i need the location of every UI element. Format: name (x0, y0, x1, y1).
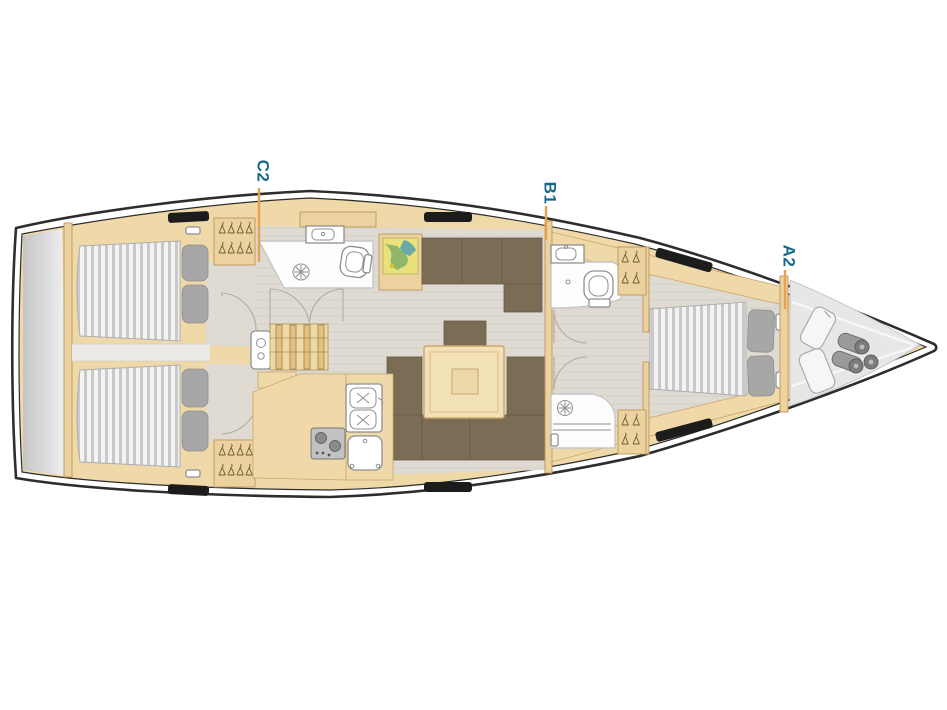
engine-space (72, 344, 210, 361)
bow-locker (790, 280, 920, 406)
double-bed-icon (650, 302, 746, 396)
cabinet (300, 212, 376, 227)
cabin-floor (206, 364, 254, 442)
cabin-label-a2: A2 (780, 245, 799, 268)
nav-station (379, 234, 422, 290)
hanging-locker-icon (618, 410, 646, 454)
hanging-locker-icon (618, 247, 646, 295)
aft-bulkhead (64, 223, 72, 477)
stove-icon (311, 428, 345, 459)
pillow-icon (182, 285, 208, 323)
pillow-icon (182, 245, 208, 281)
shower-drain-icon (293, 264, 309, 280)
wardrobe-icon (214, 440, 255, 487)
pillow-icon (747, 310, 774, 353)
deck-hatch (168, 211, 209, 223)
double-bed-icon (77, 365, 180, 467)
dinette-bottom (422, 415, 547, 460)
settee-port-corner (504, 284, 542, 312)
cabin-floor (206, 262, 254, 346)
reading-light-icon (186, 227, 200, 234)
pillow-icon (182, 411, 208, 451)
dinette-right (507, 357, 547, 415)
fridge-icon (348, 436, 382, 470)
galley-counter (253, 374, 346, 480)
pillow-icon (182, 369, 208, 407)
galley-sink-icon (346, 384, 383, 432)
deck-plan-svg: C2 B1 A2 (0, 0, 947, 710)
cabin-label-c2: C2 (254, 160, 273, 183)
salon-stool (444, 321, 486, 347)
toilet-icon (584, 271, 613, 307)
yacht-floor-plan-page: C2 B1 A2 (0, 0, 947, 710)
stern-transom (23, 229, 68, 476)
deck-hatch (424, 212, 472, 222)
reading-light-icon (186, 470, 200, 477)
pillow-icon (747, 356, 774, 397)
deck-hatch (168, 484, 209, 496)
settee-port (422, 238, 542, 284)
galley (253, 374, 393, 480)
engine-console-icon (251, 331, 271, 369)
salon-table-icon (424, 346, 504, 418)
shower-drain-icon (558, 401, 573, 416)
cabin-label-b1: B1 (541, 182, 560, 205)
companionway-steps-icon (270, 324, 328, 370)
double-bed-icon (77, 241, 180, 341)
deck-hatch (424, 482, 472, 492)
wardrobe-icon (214, 218, 255, 265)
